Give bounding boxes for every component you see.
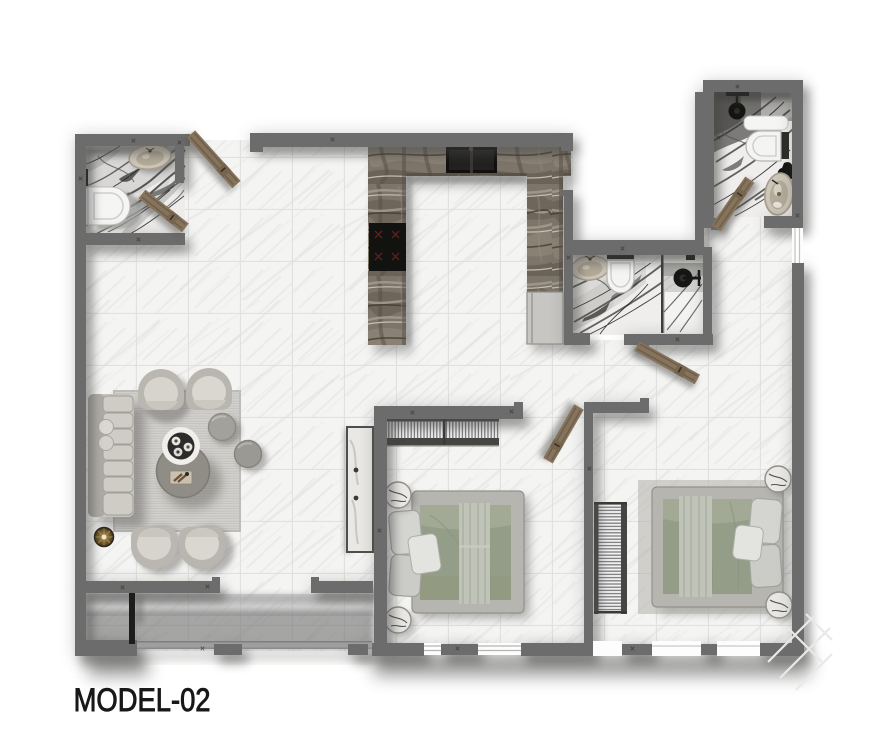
svg-text:MODEL-02: MODEL-02 — [74, 683, 211, 718]
